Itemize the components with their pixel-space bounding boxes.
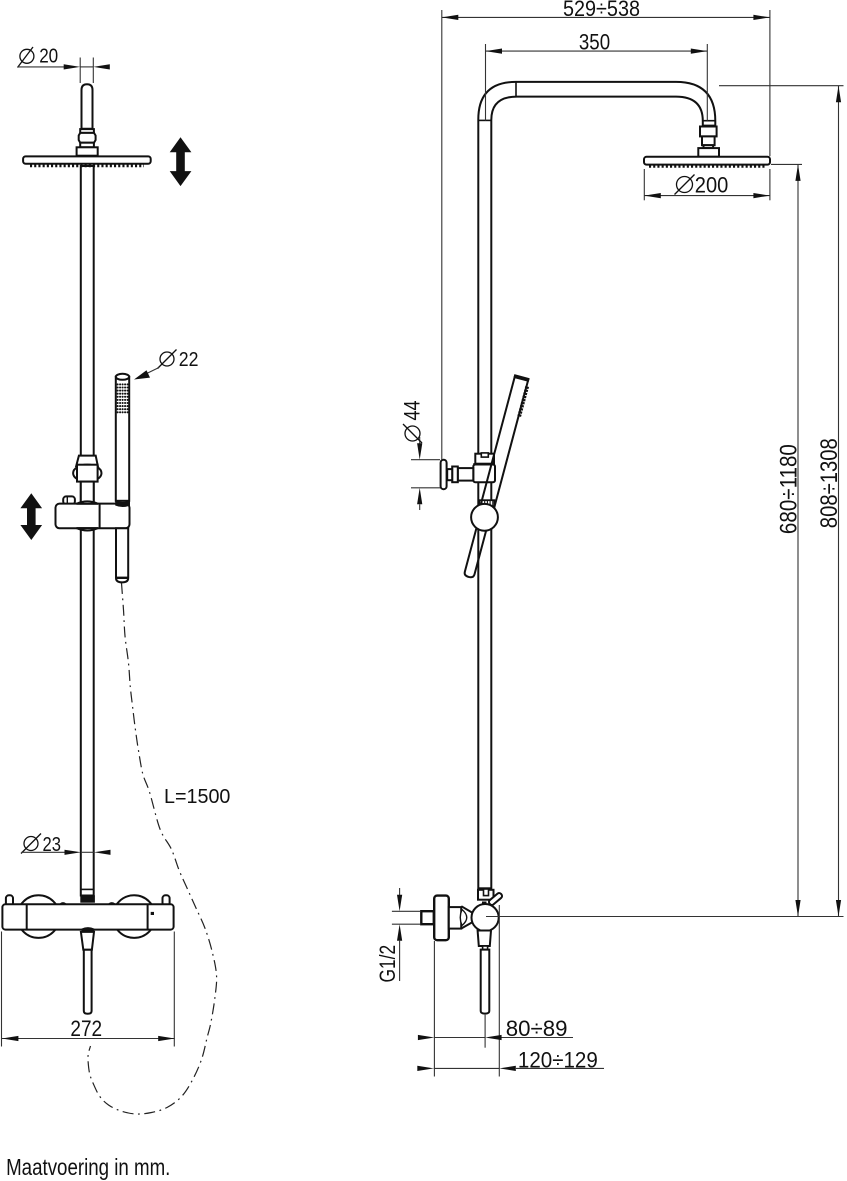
- svg-text:20: 20: [39, 45, 58, 68]
- svg-text:Maatvoering in mm.: Maatvoering in mm.: [6, 1154, 170, 1180]
- svg-text:808÷1308: 808÷1308: [816, 438, 843, 528]
- svg-text:G1/2: G1/2: [375, 945, 400, 983]
- svg-text:44: 44: [400, 401, 425, 421]
- svg-text:350: 350: [579, 30, 610, 55]
- svg-text:529÷538: 529÷538: [563, 0, 640, 21]
- svg-text:L=1500: L=1500: [164, 785, 230, 808]
- svg-text:80÷89: 80÷89: [506, 1016, 568, 1041]
- svg-text:22: 22: [179, 348, 199, 371]
- svg-text:272: 272: [70, 1016, 102, 1041]
- svg-text:200: 200: [695, 173, 729, 198]
- svg-text:120÷129: 120÷129: [518, 1048, 598, 1073]
- svg-text:680÷1180: 680÷1180: [776, 444, 803, 534]
